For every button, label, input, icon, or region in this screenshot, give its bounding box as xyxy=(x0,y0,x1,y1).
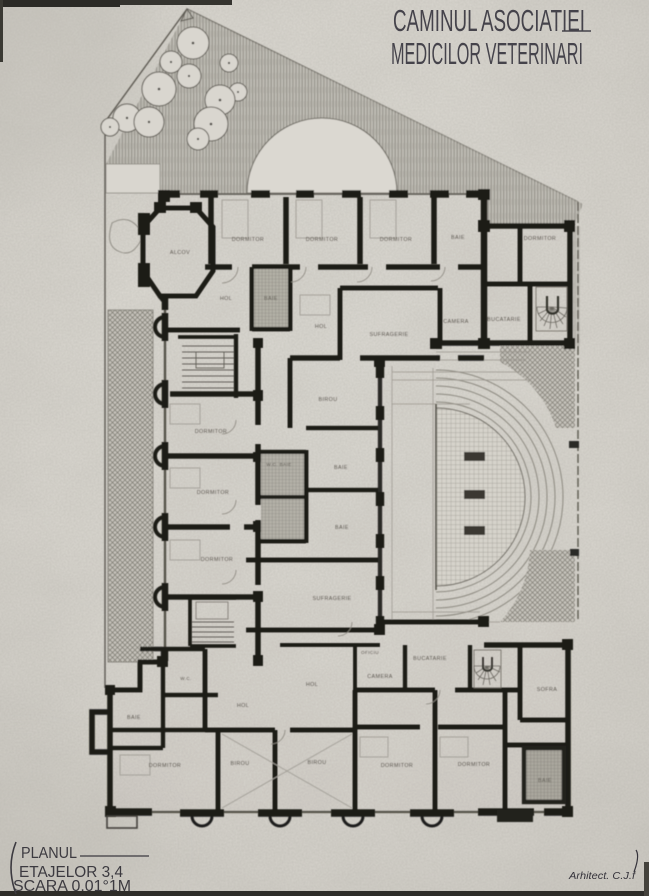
svg-text:DORMITOR: DORMITOR xyxy=(381,763,413,769)
svg-text:BAIE: BAIE xyxy=(451,235,465,241)
svg-text:DORMITOR: DORMITOR xyxy=(195,429,227,435)
svg-text:BAIE: BAIE xyxy=(538,778,552,784)
svg-text:OFICIU: OFICIU xyxy=(361,650,379,655)
svg-text:CAMERA: CAMERA xyxy=(443,319,468,325)
svg-text:HOL: HOL xyxy=(315,324,327,330)
svg-text:ALCOV: ALCOV xyxy=(170,250,190,256)
svg-text:CAMINUL ASOCIATIEI: CAMINUL ASOCIATIEI xyxy=(393,3,585,38)
svg-text:PLANUL: PLANUL xyxy=(21,845,77,862)
svg-text:DORMITOR: DORMITOR xyxy=(197,490,229,496)
svg-text:DORMITOR: DORMITOR xyxy=(458,762,490,768)
svg-text:HOL: HOL xyxy=(306,682,318,688)
svg-text:CAMERA: CAMERA xyxy=(367,674,392,680)
svg-text:BAIE: BAIE xyxy=(127,715,141,721)
svg-text:SCARA 0.01°1M: SCARA 0.01°1M xyxy=(13,878,131,895)
svg-text:DORMITOR: DORMITOR xyxy=(232,237,264,243)
svg-text:BAIE: BAIE xyxy=(335,525,349,531)
svg-text:DORMITOR: DORMITOR xyxy=(380,237,412,243)
svg-text:DORMITOR: DORMITOR xyxy=(149,763,181,769)
svg-text:DORMITOR: DORMITOR xyxy=(306,237,338,243)
svg-text:MEDICILOR VETERINARI: MEDICILOR VETERINARI xyxy=(391,36,583,71)
svg-text:DORMITOR: DORMITOR xyxy=(201,557,233,563)
svg-text:HOL: HOL xyxy=(237,703,249,709)
svg-text:BAIE: BAIE xyxy=(334,465,348,471)
svg-text:W.C.: W.C. xyxy=(180,676,192,681)
svg-text:SOFRA: SOFRA xyxy=(537,687,558,693)
svg-text:BUCATARIE: BUCATARIE xyxy=(413,656,447,662)
svg-text:BIROU: BIROU xyxy=(307,760,326,766)
svg-text:SUFRAGERIE: SUFRAGERIE xyxy=(312,596,351,602)
svg-text:BIROU: BIROU xyxy=(230,761,249,767)
svg-text:BAIE: BAIE xyxy=(264,296,278,302)
svg-text:SUFRAGERIE: SUFRAGERIE xyxy=(369,332,408,338)
svg-text:HOL: HOL xyxy=(220,296,232,302)
svg-text:Arhitect. C.J.f: Arhitect. C.J.f xyxy=(568,871,636,882)
svg-text:BIROU: BIROU xyxy=(318,397,337,403)
svg-text:BUCATARIE: BUCATARIE xyxy=(487,317,521,323)
svg-text:W.C. BAIE: W.C. BAIE xyxy=(266,462,291,467)
svg-text:DORMITOR: DORMITOR xyxy=(524,236,556,242)
